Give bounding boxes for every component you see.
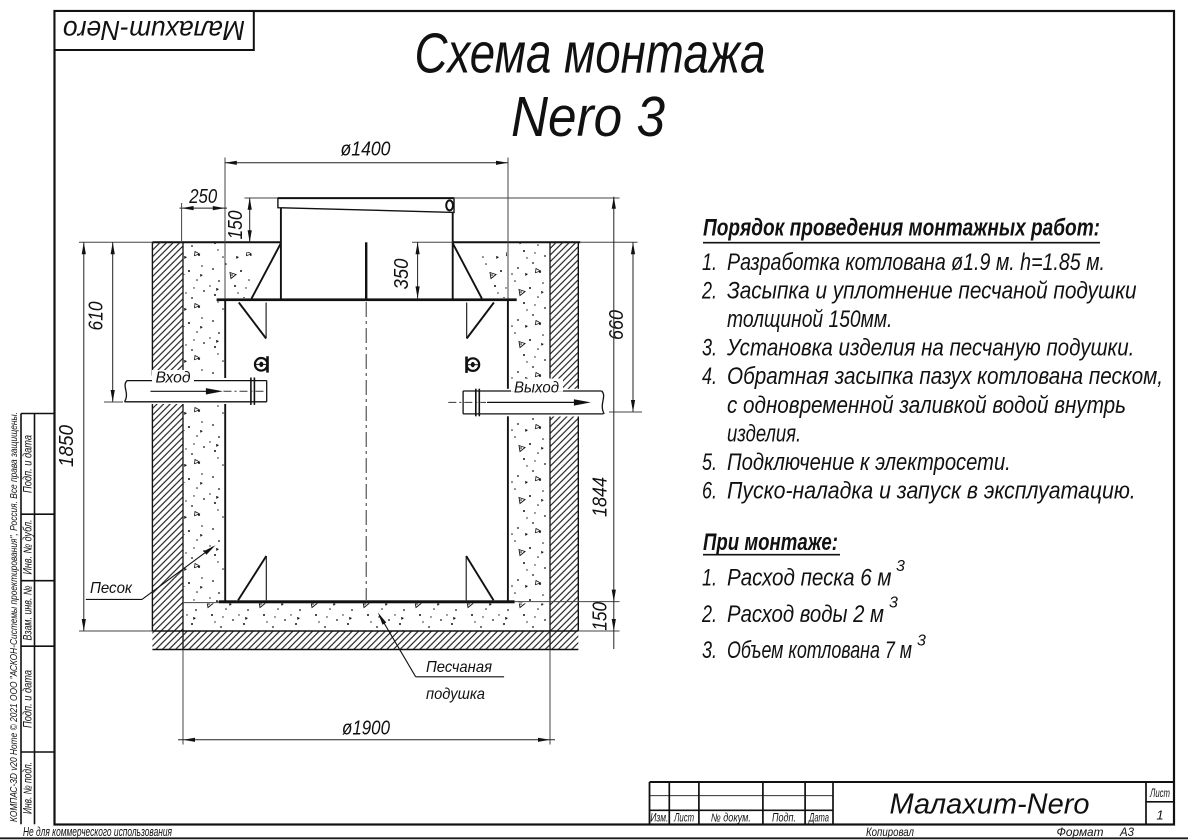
svg-text:Дата: Дата bbox=[808, 812, 829, 824]
svg-text:Обратная засыпка пазух котлова: Обратная засыпка пазух котлована песком, bbox=[727, 363, 1163, 390]
svg-text:При монтаже:: При монтаже: bbox=[703, 529, 838, 556]
svg-text:Подключение к электросети.: Подключение к электросети. bbox=[727, 449, 1011, 476]
svg-text:ø1400: ø1400 bbox=[341, 138, 392, 161]
svg-text:Малахит-Nero: Малахит-Nero bbox=[890, 789, 1090, 821]
svg-text:1850: 1850 bbox=[55, 424, 78, 467]
svg-text:Подп. и дата: Подп. и дата bbox=[23, 435, 35, 493]
svg-text:Выход: Выход bbox=[514, 380, 559, 397]
svg-text:Nero 3: Nero 3 bbox=[511, 85, 665, 149]
svg-text:Не для коммерческого использов: Не для коммерческого использования bbox=[23, 825, 172, 839]
svg-text:Малахит-Nero: Малахит-Nero bbox=[63, 15, 245, 46]
svg-text:350: 350 bbox=[390, 258, 413, 290]
svg-text:1.: 1. bbox=[702, 565, 717, 592]
svg-text:Инв. № подл.: Инв. № подл. bbox=[23, 762, 35, 814]
svg-text:Изм.: Изм. bbox=[650, 812, 668, 824]
svg-text:Лист: Лист bbox=[673, 812, 694, 824]
svg-text:Формат: Формат bbox=[1057, 825, 1104, 839]
svg-text:2.: 2. bbox=[701, 278, 717, 305]
svg-text:Подп. и дата: Подп. и дата bbox=[23, 670, 35, 728]
svg-text:№ докум.: № докум. bbox=[711, 812, 751, 824]
svg-text:4.: 4. bbox=[702, 363, 717, 390]
svg-text:Лист: Лист bbox=[1149, 786, 1170, 800]
svg-text:250: 250 bbox=[188, 185, 217, 208]
svg-text:1: 1 bbox=[1156, 808, 1163, 823]
svg-text:Расход воды 2 м: Расход воды 2 м bbox=[727, 601, 884, 628]
svg-text:изделия.: изделия. bbox=[727, 421, 801, 448]
svg-text:3: 3 bbox=[917, 633, 926, 650]
svg-text:150: 150 bbox=[224, 210, 247, 239]
svg-text:Расход песка 6 м: Расход песка 6 м bbox=[727, 565, 892, 592]
svg-text:Разработка котлована ø1.9 м. h: Разработка котлована ø1.9 м. h=1.85 м. bbox=[727, 249, 1105, 276]
svg-text:толщиной 150мм.: толщиной 150мм. bbox=[727, 306, 892, 333]
svg-text:Установка изделия на песчаную: Установка изделия на песчаную подушки. bbox=[726, 335, 1134, 362]
svg-text:Подп.: Подп. bbox=[772, 812, 796, 824]
svg-text:Песчаная: Песчаная bbox=[426, 659, 492, 676]
svg-text:Объем котлована 7 м: Объем котлована 7 м bbox=[727, 637, 912, 664]
svg-text:Пуско-наладка и запуск в экспл: Пуско-наладка и запуск в эксплуатацию. bbox=[727, 477, 1136, 504]
svg-text:660: 660 bbox=[605, 309, 628, 340]
svg-text:ø1900: ø1900 bbox=[342, 716, 390, 739]
svg-text:5.: 5. bbox=[702, 449, 717, 476]
svg-text:А3: А3 bbox=[1119, 825, 1134, 839]
svg-text:3.: 3. bbox=[702, 335, 717, 362]
svg-text:Копировал: Копировал bbox=[866, 825, 914, 839]
svg-text:Схема монтажа: Схема монтажа bbox=[415, 22, 766, 86]
svg-text:2.: 2. bbox=[701, 601, 717, 628]
svg-text:Засыпка и уплотнение песчаной: Засыпка и уплотнение песчаной подушки bbox=[727, 278, 1137, 305]
svg-text:подушка: подушка bbox=[426, 686, 485, 703]
svg-text:610: 610 bbox=[85, 301, 108, 330]
svg-text:Вход: Вход bbox=[156, 370, 191, 387]
svg-text:Инв. № дубл.: Инв. № дубл. bbox=[23, 520, 35, 575]
svg-text:КОМПАС-3D v20 Home © 2021 ООО: КОМПАС-3D v20 Home © 2021 ООО "АСКОН-Сис… bbox=[8, 412, 20, 822]
svg-text:3: 3 bbox=[896, 558, 905, 575]
svg-text:1.: 1. bbox=[702, 249, 717, 276]
svg-text:Песок: Песок bbox=[90, 580, 133, 597]
svg-text:150: 150 bbox=[589, 601, 612, 630]
svg-text:3: 3 bbox=[889, 594, 898, 611]
svg-text:6.: 6. bbox=[702, 477, 717, 504]
svg-text:3.: 3. bbox=[702, 637, 717, 664]
svg-text:Взам. инв. №: Взам. инв. № bbox=[23, 585, 35, 640]
svg-text:с одновременной заливкой водой: с одновременной заливкой водой внутрь bbox=[727, 392, 1126, 419]
svg-text:Порядок проведения монтажных р: Порядок проведения монтажных работ: bbox=[703, 214, 1100, 241]
svg-text:1844: 1844 bbox=[589, 477, 612, 517]
